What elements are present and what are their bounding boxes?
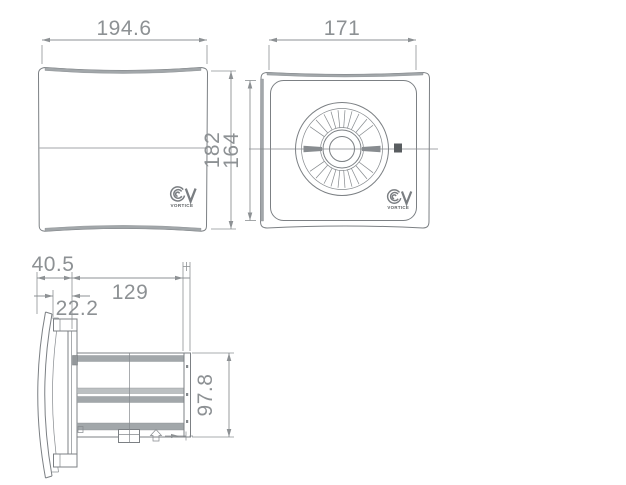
brand-text: VORTICE <box>387 205 409 210</box>
indicator-square <box>394 144 402 153</box>
end-cap-screw <box>186 365 188 368</box>
duct-groove-mid2 <box>77 397 184 403</box>
technical-drawing: VORTICE 194.6 182 <box>0 0 626 485</box>
dim-face-width: 171 <box>324 17 361 40</box>
dim-front-width: 194.6 <box>96 17 151 40</box>
terminal-box <box>119 430 140 443</box>
face-left-edge-band <box>261 79 264 221</box>
cover-profile-back <box>53 318 59 472</box>
end-cap-screw <box>186 393 188 396</box>
cover-profile-inner <box>45 314 52 476</box>
front-view: VORTICE <box>39 68 208 232</box>
drawing-page: VORTICE 194.6 182 <box>0 0 626 485</box>
duct-groove-top <box>77 356 184 362</box>
dim-side-depth: 40.5 <box>32 253 75 276</box>
dim-face-height: 164 <box>220 132 243 169</box>
bottom-mount-bracket <box>54 454 78 467</box>
dim-cover-depth: 22.2 <box>56 297 99 320</box>
duct-groove-mid1 <box>77 388 184 394</box>
side-view <box>38 312 193 478</box>
top-mount-bracket <box>54 319 78 331</box>
duct-groove-bottom <box>77 423 184 430</box>
mounting-plate <box>68 331 77 454</box>
dim-duct-length: 129 <box>112 281 149 304</box>
duct-clip <box>73 356 78 366</box>
end-cap-screw <box>186 420 188 423</box>
brand-text: VORTICE <box>171 203 194 208</box>
dim-duct-diameter: 97.8 <box>194 374 217 417</box>
face-view: VORTICE <box>249 73 438 229</box>
